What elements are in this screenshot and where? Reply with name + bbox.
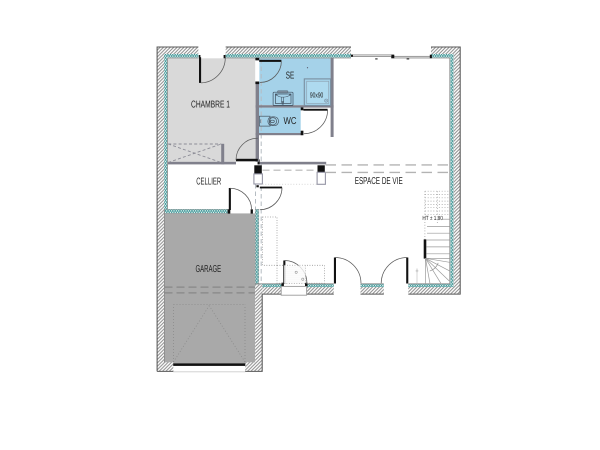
svg-text:CELLIER: CELLIER — [196, 177, 221, 188]
svg-text:WC: WC — [284, 116, 297, 127]
svg-text:HT ± 1.80: HT ± 1.80 — [422, 215, 443, 222]
svg-text:ESPACE DE VIE: ESPACE DE VIE — [355, 176, 403, 187]
svg-text:90x90: 90x90 — [310, 91, 323, 100]
svg-text:SE: SE — [286, 70, 295, 81]
svg-text:CHAMBRE 1: CHAMBRE 1 — [191, 99, 230, 110]
svg-text:GARAGE: GARAGE — [195, 264, 221, 275]
